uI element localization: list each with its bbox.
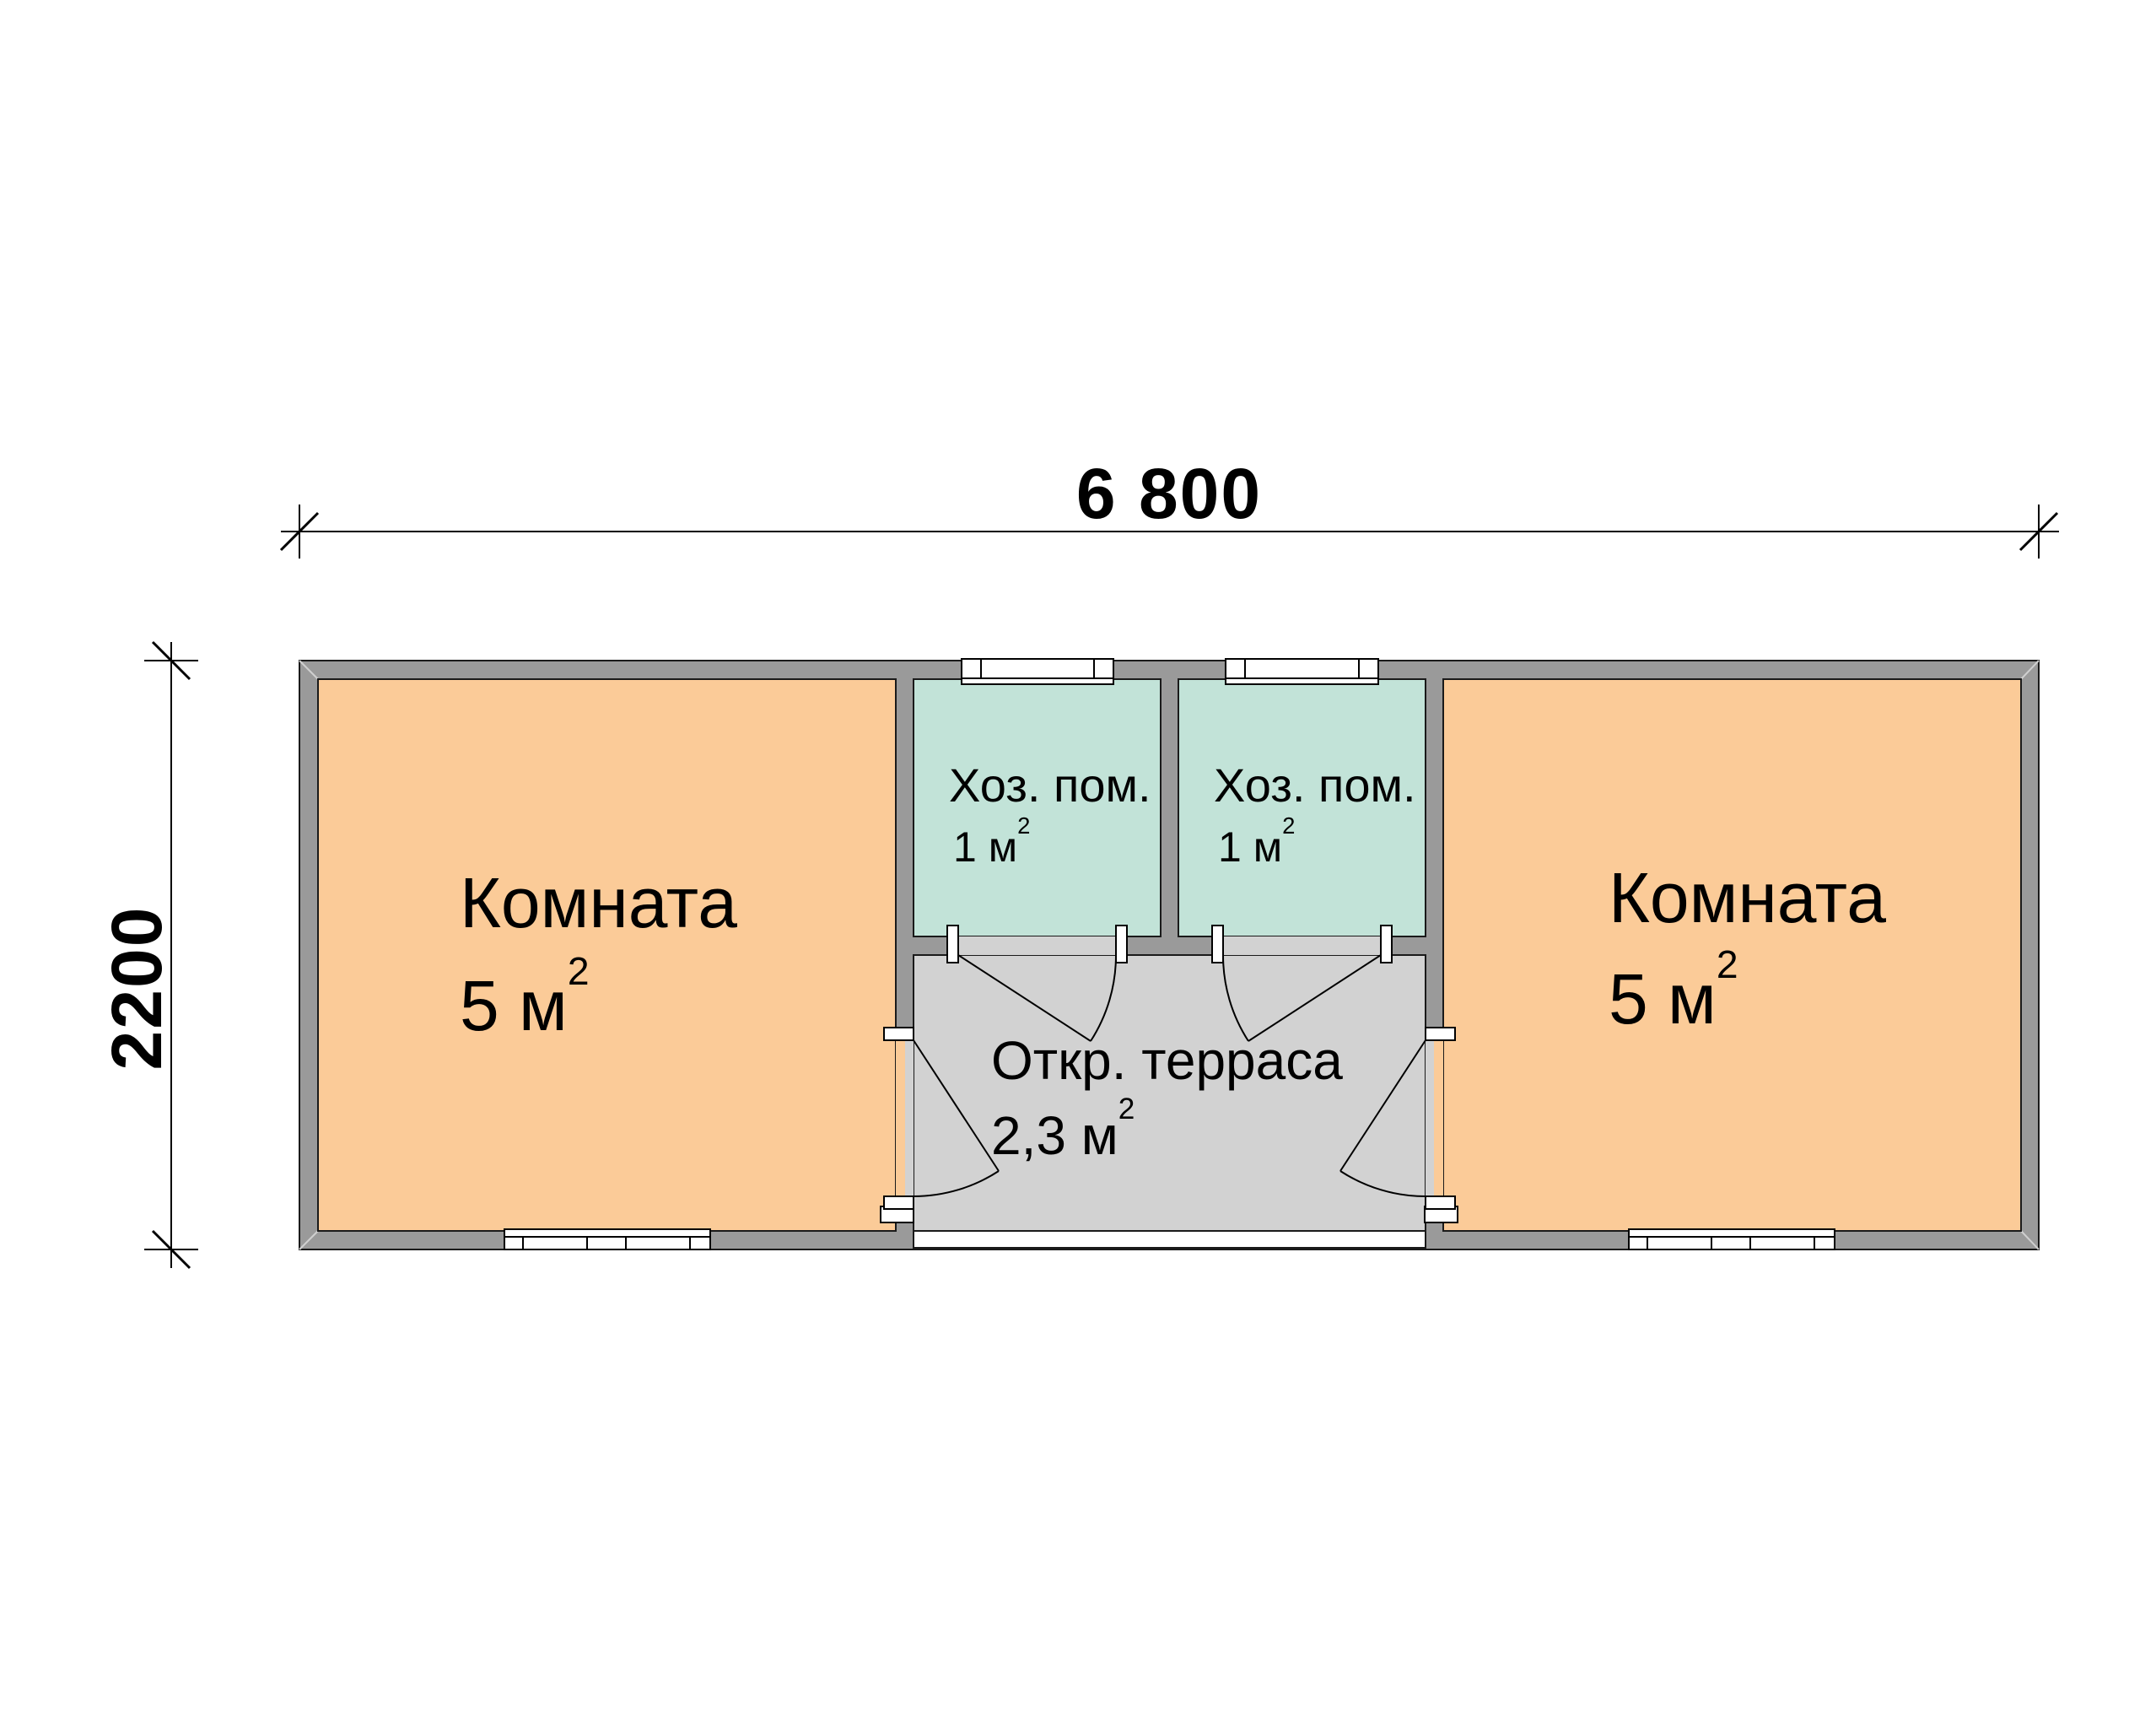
terrace-name: Откр. терраса xyxy=(991,1034,1343,1087)
utility-left-door-jamb-left xyxy=(947,926,958,963)
terrace-area: 2,3 м2 xyxy=(991,1109,1135,1163)
utility-left-door-jamb-right xyxy=(1116,926,1127,963)
room-left-door-jamb-bottom xyxy=(884,1196,914,1209)
utility-right-door-jamb-right xyxy=(1381,926,1392,963)
room-left-area: 5 м2 xyxy=(460,970,590,1041)
floor-plan: 6 800 2200 Комната 5 м2 Хоз. пом. 1 м2 Х… xyxy=(0,0,2156,1727)
room-right-area: 5 м2 xyxy=(1609,963,1738,1034)
window-top-right xyxy=(1226,659,1378,684)
window-bottom-left xyxy=(504,1229,710,1249)
room-left-door-opening-outer xyxy=(905,1040,914,1196)
window-top-left xyxy=(962,659,1113,684)
utility-left-area: 1 м2 xyxy=(953,826,1030,868)
room-right-door-opening-inner xyxy=(1434,1040,1443,1196)
utility-left-door-opening xyxy=(958,936,1116,955)
room-left-floor xyxy=(318,679,896,1231)
utility-right-door-opening xyxy=(1223,936,1381,955)
room-left-door-jamb-top xyxy=(884,1028,914,1040)
terrace-open-side xyxy=(914,1232,1425,1247)
room-right-name: Комната xyxy=(1609,862,1886,933)
room-right-door-opening-outer xyxy=(1426,1040,1434,1196)
window-bottom-right xyxy=(1629,1229,1835,1249)
utility-right-name: Хоз. пом. xyxy=(1214,762,1416,809)
dimension-height-label: 2200 xyxy=(101,906,172,1071)
utility-left-name: Хоз. пом. xyxy=(949,762,1151,809)
room-right-door-jamb-top xyxy=(1426,1028,1455,1040)
utility-right-area: 1 м2 xyxy=(1218,826,1295,868)
utility-right-door-jamb-left xyxy=(1212,926,1223,963)
room-left-door-opening-inner xyxy=(896,1040,905,1196)
terrace-floor xyxy=(914,955,1426,1231)
room-right-door-jamb-bottom xyxy=(1426,1196,1455,1209)
dimension-width-label: 6 800 xyxy=(1076,458,1262,529)
room-left-name: Комната xyxy=(460,867,737,938)
